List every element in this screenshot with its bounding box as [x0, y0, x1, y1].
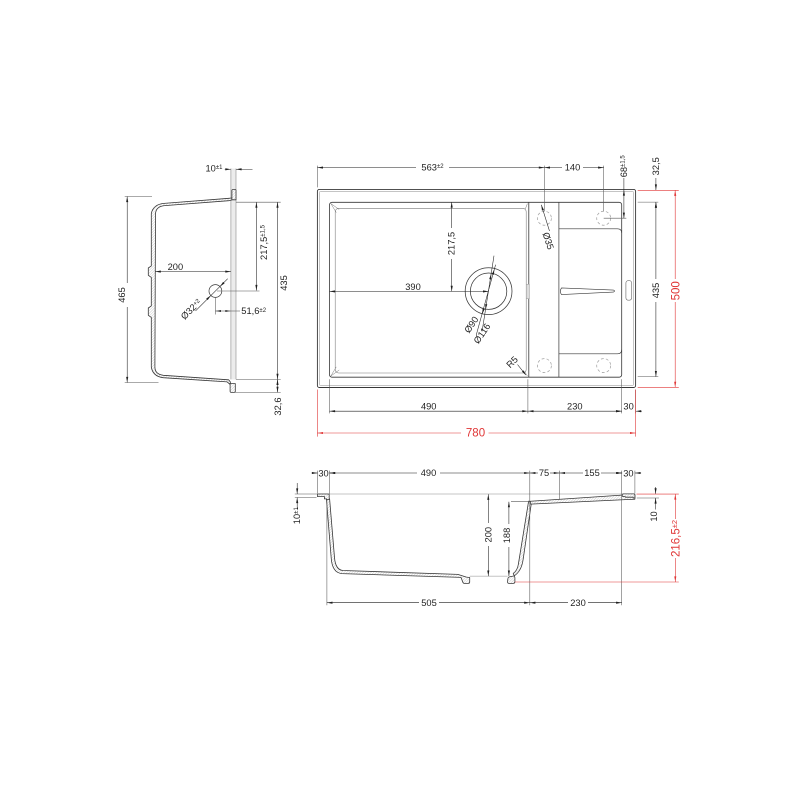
- svg-text:200: 200: [168, 262, 184, 272]
- svg-text:505: 505: [421, 598, 437, 608]
- svg-text:390: 390: [405, 282, 421, 292]
- svg-text:563±2: 563±2: [421, 163, 444, 173]
- svg-text:500: 500: [671, 281, 683, 300]
- svg-text:217,5: 217,5: [447, 232, 457, 255]
- svg-text:32,6: 32,6: [273, 397, 283, 415]
- svg-text:465: 465: [117, 287, 127, 303]
- svg-text:68±1,5: 68±1,5: [619, 155, 629, 178]
- svg-text:10: 10: [649, 511, 659, 521]
- svg-text:30: 30: [318, 468, 328, 478]
- svg-text:32,5: 32,5: [651, 157, 661, 175]
- svg-text:30: 30: [623, 401, 633, 411]
- svg-text:490: 490: [421, 401, 437, 411]
- svg-text:216,5±2: 216,5±2: [670, 520, 682, 557]
- svg-text:230: 230: [570, 598, 586, 608]
- svg-text:Ø32+2: Ø32+2: [179, 297, 204, 322]
- svg-text:230: 230: [567, 401, 583, 411]
- svg-text:51,6±2: 51,6±2: [241, 306, 266, 316]
- svg-text:10±1: 10±1: [292, 507, 302, 525]
- svg-text:188: 188: [502, 528, 512, 544]
- svg-text:490: 490: [421, 468, 437, 478]
- svg-text:140: 140: [565, 163, 581, 173]
- svg-text:155: 155: [584, 468, 600, 478]
- svg-text:780: 780: [466, 428, 485, 440]
- svg-text:200: 200: [483, 527, 493, 543]
- svg-text:217,5±1,5: 217,5±1,5: [259, 224, 269, 260]
- svg-text:435: 435: [279, 275, 289, 291]
- svg-text:30: 30: [623, 468, 633, 478]
- svg-text:75: 75: [539, 468, 549, 478]
- svg-text:10±1: 10±1: [206, 163, 224, 173]
- svg-text:435: 435: [651, 283, 661, 299]
